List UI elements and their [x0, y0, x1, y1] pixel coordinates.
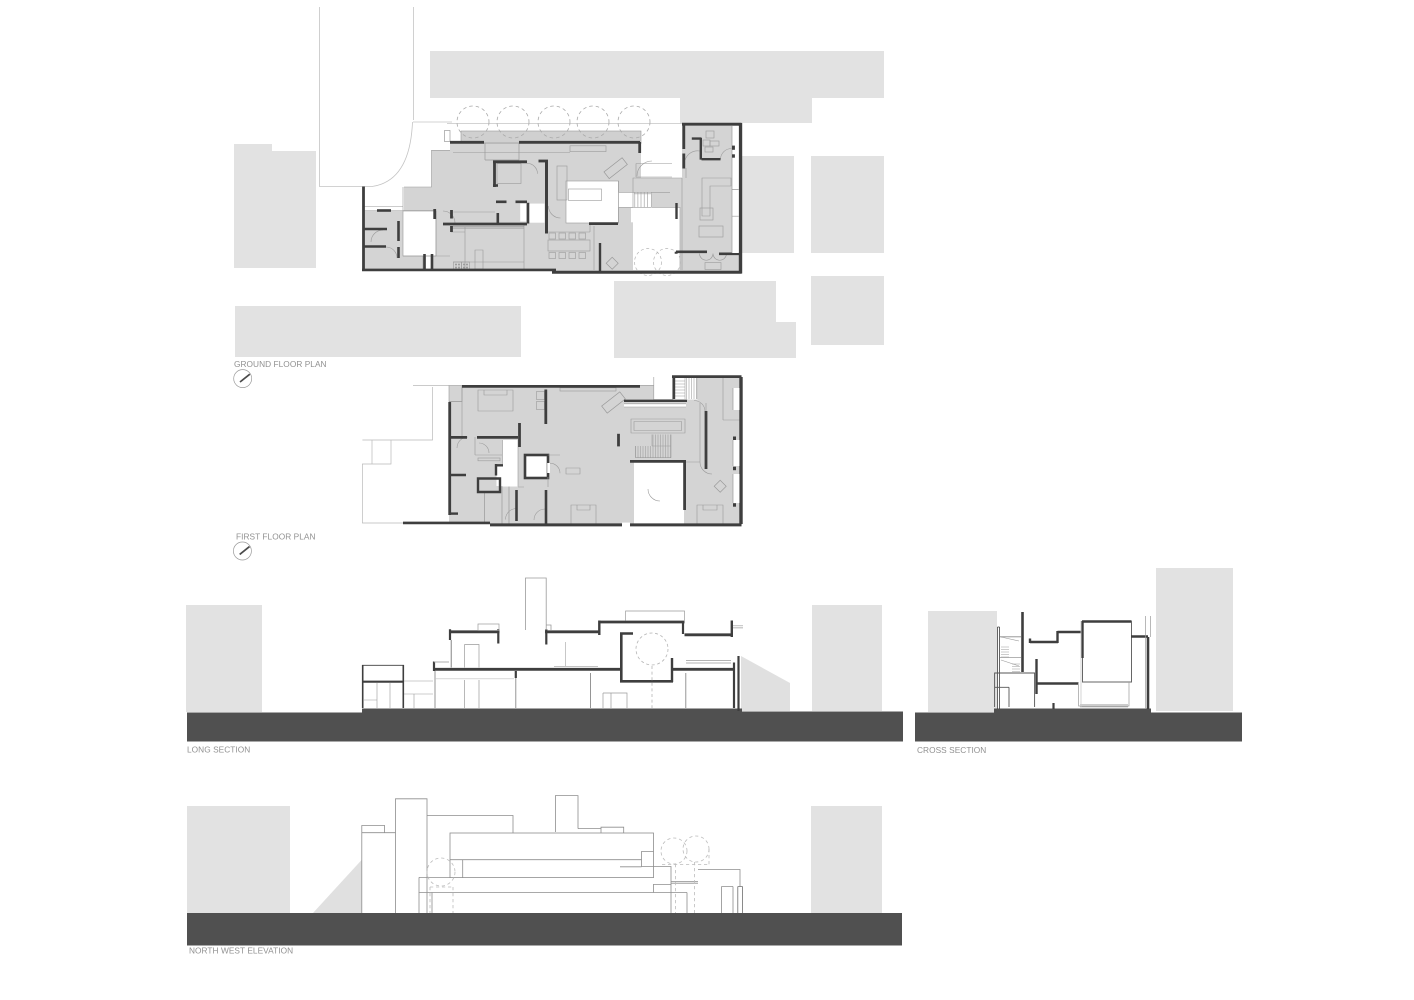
svg-text:CROSS SECTION: CROSS SECTION — [917, 745, 986, 755]
svg-text:LONG SECTION: LONG SECTION — [187, 745, 250, 755]
svg-text:GROUND FLOOR PLAN: GROUND FLOOR PLAN — [234, 359, 327, 369]
svg-text:FIRST FLOOR PLAN: FIRST FLOOR PLAN — [236, 532, 315, 542]
svg-text:NORTH WEST ELEVATION: NORTH WEST ELEVATION — [189, 946, 293, 956]
